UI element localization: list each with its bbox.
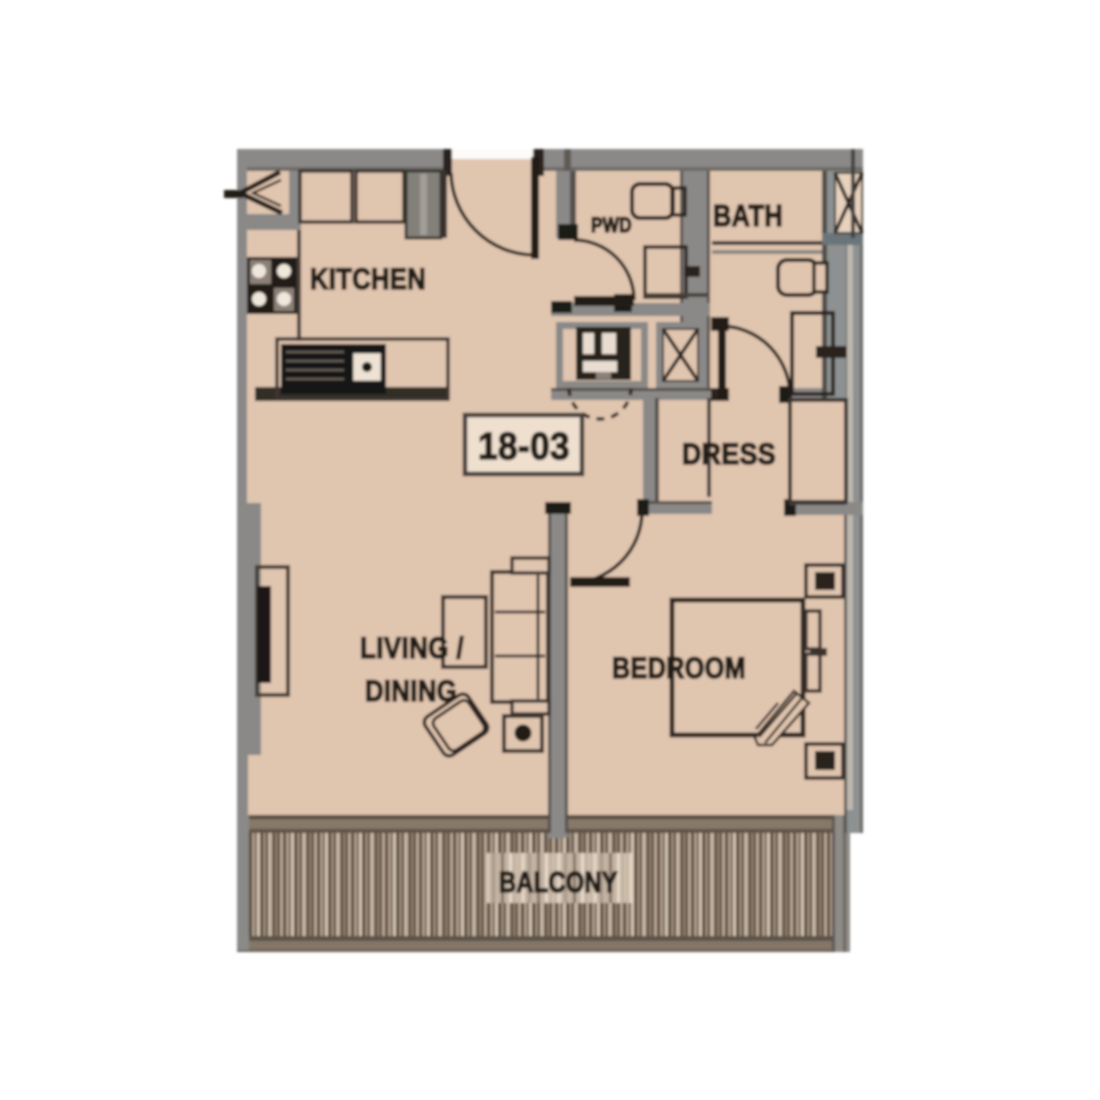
svg-text:BEDROOM: BEDROOM [612, 652, 746, 685]
svg-text:18-03: 18-03 [478, 426, 570, 468]
svg-text:BALCONY: BALCONY [499, 867, 618, 899]
svg-text:PWD: PWD [591, 214, 632, 237]
svg-text:LIVING /: LIVING / [360, 632, 464, 665]
svg-text:KITCHEN: KITCHEN [310, 263, 426, 296]
svg-text:DINING: DINING [365, 675, 457, 708]
svg-text:BATH: BATH [713, 198, 783, 233]
svg-text:DRESS: DRESS [682, 438, 776, 471]
